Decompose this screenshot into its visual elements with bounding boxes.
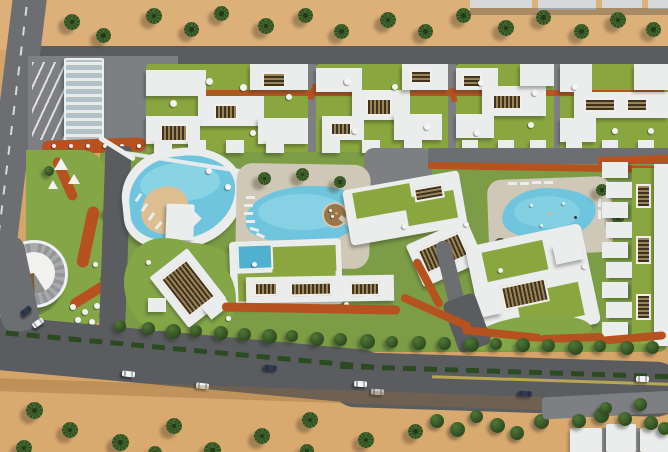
shrub xyxy=(490,418,505,433)
villa xyxy=(606,424,636,452)
roof-umbrella xyxy=(572,84,578,90)
roof-umbrella xyxy=(344,78,351,85)
swimmer xyxy=(540,224,543,227)
street-tree xyxy=(310,332,324,346)
roof-umbrella xyxy=(240,84,247,91)
terrace-unit xyxy=(226,140,244,153)
roof-louver-panel xyxy=(350,282,380,297)
top-palm xyxy=(214,6,229,21)
sun-lounger xyxy=(244,204,253,207)
apartment-block xyxy=(146,70,206,96)
apartment-block xyxy=(316,68,362,92)
beach-palm xyxy=(300,444,314,452)
terrace-unit xyxy=(322,140,340,153)
sun-lounger xyxy=(598,198,601,207)
apartment-block xyxy=(394,114,442,140)
roof-umbrella xyxy=(402,224,407,229)
promenade-umbrella xyxy=(86,144,90,148)
island-seat xyxy=(335,212,338,215)
island-seat xyxy=(329,209,332,212)
beach-palm xyxy=(358,432,374,448)
park-umbrella xyxy=(70,304,76,310)
street-tree xyxy=(334,333,347,346)
beach-palm xyxy=(204,442,221,452)
car xyxy=(636,376,649,382)
street-tree xyxy=(114,320,126,332)
sun-lounger xyxy=(544,181,553,184)
top-palm xyxy=(610,12,626,28)
top-palm xyxy=(380,12,396,28)
street-tree xyxy=(620,341,634,355)
beach-palm xyxy=(112,434,129,451)
swimmer xyxy=(530,204,533,207)
roof-umbrella xyxy=(206,78,213,85)
top-palm xyxy=(298,8,313,23)
terraced-block xyxy=(606,302,632,318)
street-tree xyxy=(490,338,502,350)
deck-palm xyxy=(296,168,309,181)
roof-louver-panel xyxy=(254,282,278,296)
roof-umbrella xyxy=(352,128,358,134)
park-tree xyxy=(44,166,54,176)
driveway-gap xyxy=(308,64,316,152)
roof-umbrella xyxy=(392,84,398,90)
roof-umbrella xyxy=(532,90,538,96)
top-palm xyxy=(146,8,162,24)
street-tree xyxy=(142,322,155,335)
beach-palm xyxy=(302,412,318,428)
terrace-unit xyxy=(266,140,284,153)
top-palm xyxy=(498,20,514,36)
east-pool-shallow xyxy=(514,196,580,228)
pool-umbrella xyxy=(206,168,212,174)
street-tree xyxy=(262,329,277,344)
terraced-block xyxy=(602,202,628,218)
swimmer xyxy=(574,216,577,219)
street-tree xyxy=(438,337,451,350)
garden-pavilion xyxy=(148,298,166,312)
terraced-block xyxy=(602,162,628,178)
roof-louver-panel xyxy=(214,104,238,120)
shrub xyxy=(658,422,668,435)
top-palm xyxy=(184,22,199,37)
apartment-block xyxy=(634,64,668,90)
garden-umbrella xyxy=(226,316,231,321)
promenade-umbrella xyxy=(137,144,141,148)
park-umbrella xyxy=(93,262,98,267)
roof-umbrella xyxy=(528,122,534,128)
clubhouse-glass-roof xyxy=(64,58,104,144)
swimmer xyxy=(548,212,551,215)
driveway-gap xyxy=(448,64,456,152)
top-palm xyxy=(456,8,471,23)
roof-louver-panel xyxy=(492,94,522,110)
roof-umbrella xyxy=(252,262,257,267)
apartment-block xyxy=(520,64,554,86)
street-tree xyxy=(568,340,583,355)
street-tree xyxy=(542,339,555,352)
roof-umbrella xyxy=(498,268,503,273)
top-palm xyxy=(646,22,661,37)
roof-umbrella xyxy=(612,128,618,134)
villa xyxy=(570,428,602,452)
roof-umbrella xyxy=(582,264,587,269)
roof-umbrella xyxy=(424,124,430,130)
pool-umbrella xyxy=(225,184,231,190)
beach-palm xyxy=(62,422,78,438)
top-palm xyxy=(64,14,80,30)
top-palm xyxy=(574,24,589,39)
sun-lounger xyxy=(246,220,255,223)
roof-louver-panel xyxy=(410,70,432,84)
street-tree xyxy=(360,334,375,349)
top-palm xyxy=(96,28,111,43)
roof-louver-panel xyxy=(262,72,286,88)
masterplan-aerial-view xyxy=(0,0,668,452)
street-tree xyxy=(214,326,228,340)
roof-garden xyxy=(272,245,337,273)
roof-louver-panel xyxy=(636,236,651,264)
terraced-block xyxy=(606,182,632,198)
far-rooftop xyxy=(470,0,532,8)
roof-umbrella xyxy=(478,80,484,86)
terraced-block xyxy=(606,262,632,278)
beach-palm xyxy=(166,418,182,434)
roof-louver-panel xyxy=(636,184,651,208)
sun-lounger xyxy=(520,182,529,185)
terraced-block xyxy=(602,282,628,298)
beach-palm xyxy=(148,446,162,452)
garden-umbrella xyxy=(146,260,151,265)
shrub xyxy=(450,422,465,437)
deck-palm xyxy=(334,176,346,188)
street-tree xyxy=(464,337,479,352)
shrub xyxy=(470,410,483,423)
beach-palm xyxy=(26,402,43,419)
street-tree xyxy=(646,341,659,354)
terraced-block xyxy=(602,242,628,258)
roof-louver-panel xyxy=(330,122,352,136)
roof-umbrella xyxy=(250,130,256,136)
roof-louver-panel xyxy=(584,98,616,112)
roof-umbrella xyxy=(648,128,654,134)
street-tree xyxy=(412,336,426,350)
park-umbrella xyxy=(82,309,88,315)
roof-louver-panel xyxy=(366,98,392,116)
car xyxy=(354,381,367,388)
terraced-block xyxy=(606,222,632,238)
street-tree xyxy=(166,324,181,339)
beach-palm xyxy=(16,440,32,452)
rooftop-shadow xyxy=(470,8,668,15)
roof-umbrella xyxy=(286,94,292,100)
street-tree xyxy=(190,325,202,337)
car xyxy=(122,370,136,377)
apartment-block xyxy=(654,164,668,346)
promenade-umbrella xyxy=(69,144,73,148)
parking-stripes xyxy=(32,62,66,140)
shrub xyxy=(510,426,524,440)
roof-umbrella xyxy=(170,100,177,107)
shrub xyxy=(618,412,632,426)
street-tree xyxy=(594,340,606,352)
street-tree xyxy=(516,338,530,352)
deck-palm xyxy=(258,172,271,185)
beach-palm xyxy=(408,424,423,439)
top-palm xyxy=(258,18,274,34)
island-seat xyxy=(331,215,334,218)
shrub xyxy=(644,416,658,430)
roof-louver-panel xyxy=(626,98,648,112)
shrub xyxy=(572,414,586,428)
roof-louver-panel xyxy=(290,282,332,297)
beach-palm xyxy=(254,428,270,444)
sun-lounger xyxy=(244,212,253,215)
far-rooftop xyxy=(602,0,642,8)
street-tree xyxy=(238,328,251,341)
street-tree xyxy=(386,336,398,348)
sun-lounger xyxy=(246,196,255,199)
sun-lounger xyxy=(598,210,601,219)
shrub xyxy=(600,402,612,414)
promenade-umbrella xyxy=(52,144,56,148)
car xyxy=(264,364,277,371)
street-tree xyxy=(286,330,298,342)
sun-lounger xyxy=(508,182,517,185)
apartment-block xyxy=(560,118,596,142)
roof-louver-panel xyxy=(636,294,651,320)
roof-umbrella xyxy=(464,222,469,227)
sun-lounger xyxy=(532,181,541,184)
shrub xyxy=(634,398,647,411)
top-palm xyxy=(536,10,551,25)
roof-umbrella xyxy=(474,130,480,136)
swimmer xyxy=(562,202,565,205)
top-palm xyxy=(334,24,349,39)
top-palm xyxy=(418,24,433,39)
shrub xyxy=(430,414,444,428)
